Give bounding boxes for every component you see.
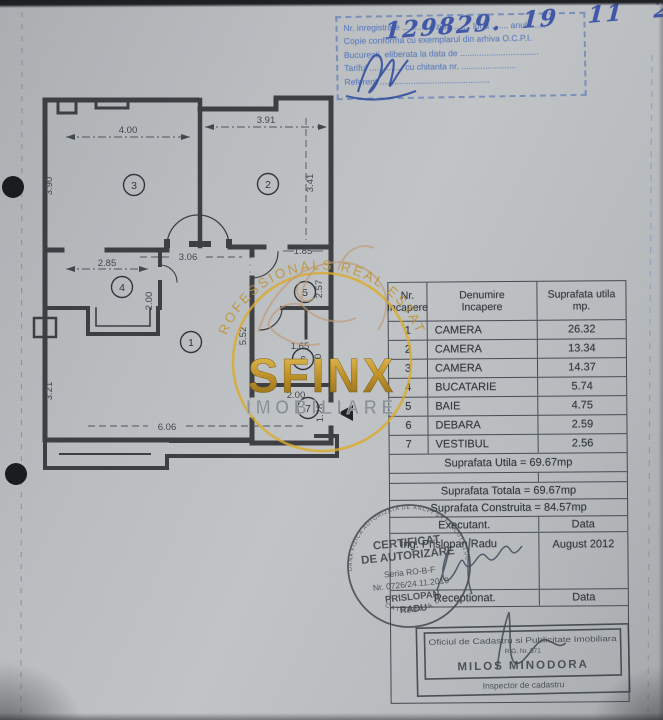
table-row: 1CAMERA26.32 xyxy=(389,320,626,341)
dim-label: 3.41 xyxy=(305,174,316,193)
plan-dimension-lines xyxy=(66,118,327,440)
area-table: Nr.Incapere DenumireIncapere Suprafata u… xyxy=(387,280,629,704)
table-header-row: Nr.Incapere DenumireIncapere Suprafata u… xyxy=(388,281,625,322)
room-number: 5 xyxy=(302,287,308,299)
header-suprafata: Suprafata utilamp. xyxy=(537,281,625,320)
dim-label: 2.00 xyxy=(287,390,306,401)
dim-label: 3.90 xyxy=(44,177,55,196)
executant-label-row: Executant. Data xyxy=(390,516,627,534)
dim-label: 3.06 xyxy=(179,252,198,263)
dim-label: 2.57 xyxy=(314,280,325,299)
room-number: 4 xyxy=(119,282,125,294)
dim-label: 1.85 xyxy=(294,246,313,257)
dim-label: 3.21 xyxy=(44,382,55,401)
dim-label: 6.06 xyxy=(158,422,177,433)
dim-label: 2.85 xyxy=(98,258,117,269)
table-row: 2CAMERA13.34 xyxy=(389,339,626,360)
dim-label: 2.00 xyxy=(144,292,155,311)
total-construita-row: Suprafata Construita = 84.57mp xyxy=(390,499,627,518)
bottom-right-corner-shadow xyxy=(585,661,663,720)
dim-label: 4.00 xyxy=(119,125,138,136)
watermark-circle xyxy=(233,273,411,451)
right-fold-line-blue xyxy=(650,55,652,330)
room-number: 1 xyxy=(188,337,194,349)
total-totala-row: Suprafata Totala = 69.67mp xyxy=(390,482,627,501)
table-row: 7VESTIBUL2.56 xyxy=(390,434,627,455)
table-row: 6DEBARA2.59 xyxy=(389,415,626,436)
total-utila-row: Suprafata Utila = 69.67mp xyxy=(390,453,627,474)
right-edge-shadow xyxy=(658,0,663,720)
punch-hole xyxy=(5,463,27,485)
table-row: 5BAIE4.75 xyxy=(389,396,626,417)
watermark-subtitle: IMOBILIARE xyxy=(246,397,398,419)
room-number: 2 xyxy=(265,179,271,191)
dim-label: 1.65 xyxy=(291,341,310,352)
room-circles xyxy=(112,174,319,419)
dim-label: 1.70 xyxy=(313,354,324,373)
receptionat-row: Receptionat. Data xyxy=(391,589,628,608)
header-nr: Nr.Incapere xyxy=(388,283,427,321)
executant-name-row: Ing. Prislopan Radu August 2012 xyxy=(390,532,627,591)
bottom-left-corner-shadow xyxy=(0,655,92,720)
bottom-edge-shadow xyxy=(0,713,663,720)
left-fold-line xyxy=(21,0,22,720)
room-numbers: 1 2 3 4 5 6 7 xyxy=(119,179,311,415)
scanned-floor-plan-document: { "registration_stamp": { "handwritten_n… xyxy=(0,0,663,720)
table-row: 3CAMERA14.37 xyxy=(389,358,626,379)
punch-hole xyxy=(2,176,24,198)
room-number: 7 xyxy=(305,403,311,415)
dim-label: 3.91 xyxy=(257,115,276,126)
plan-dimension-labels: 4.00 3.91 3.06 2.85 1.85 1.65 2.00 6.06 … xyxy=(44,115,326,433)
dim-label: 1.28 xyxy=(315,404,326,423)
watermark-title: SFINX xyxy=(248,350,396,403)
table-row: 4BUCATARIE5.74 xyxy=(389,377,626,398)
header-denumire: DenumireIncapere xyxy=(427,282,537,321)
room-number: 3 xyxy=(131,180,137,192)
plan-walls xyxy=(34,98,337,468)
sphinx-sketch xyxy=(258,246,386,345)
room-number: 6 xyxy=(300,354,306,366)
dim-label: 5.52 xyxy=(238,327,249,346)
entrance-arrow-icon xyxy=(338,405,353,421)
